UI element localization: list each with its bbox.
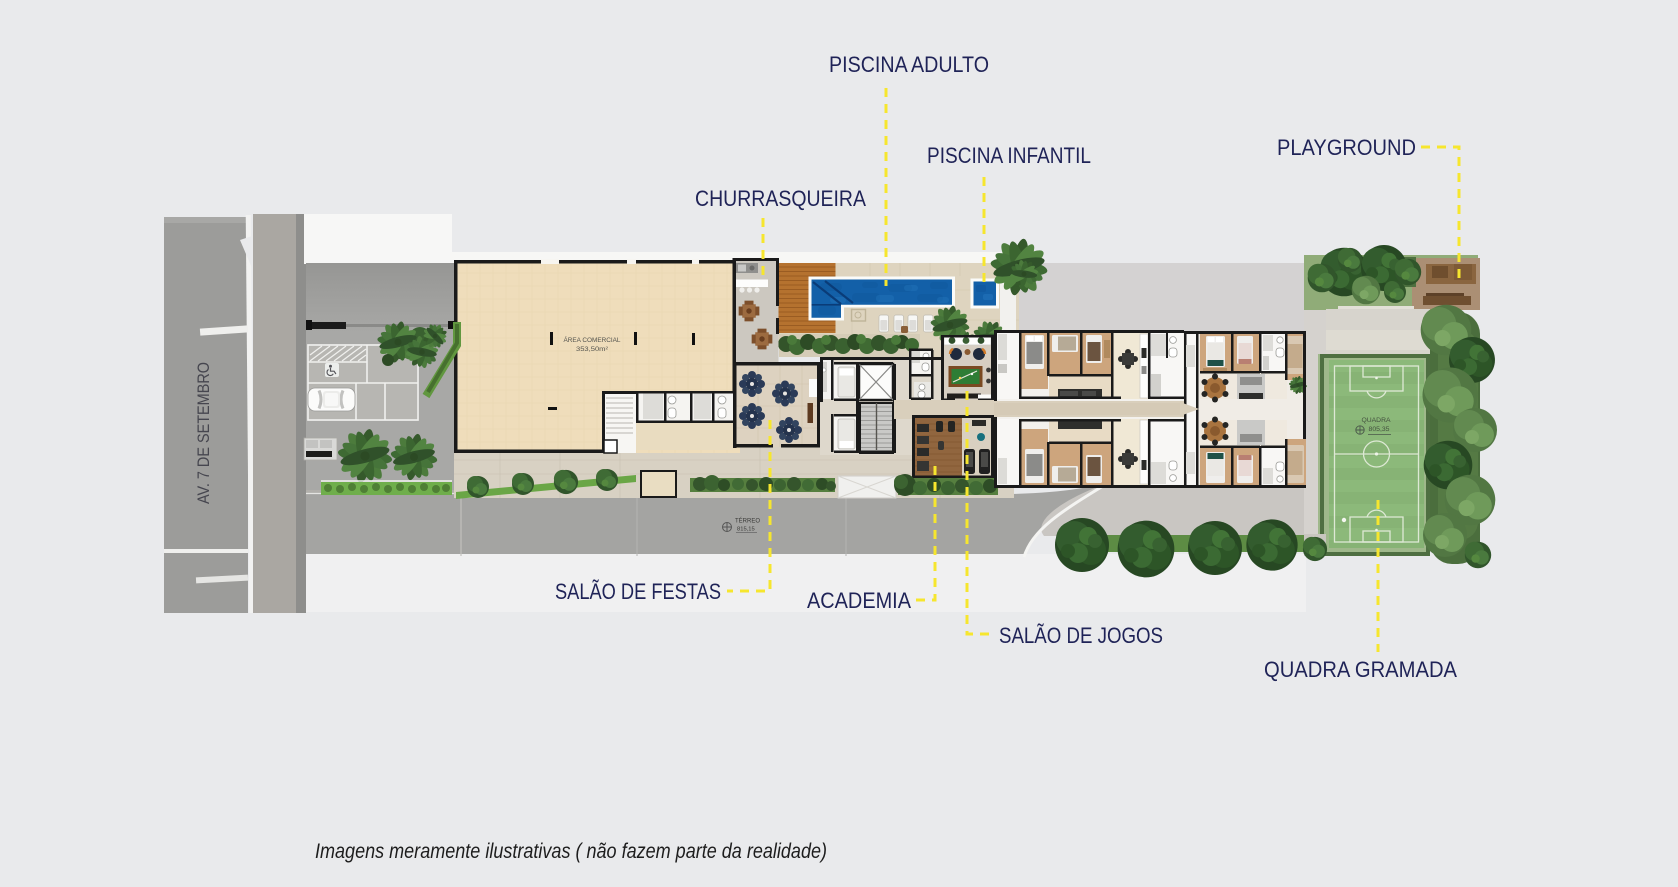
svg-text:SALÃO DE JOGOS: SALÃO DE JOGOS <box>999 623 1163 648</box>
svg-text:TÉRREO: TÉRREO <box>735 518 760 525</box>
svg-text:815,15: 815,15 <box>737 527 755 533</box>
svg-text:Imagens meramente ilustrativas: Imagens meramente ilustrativas ( não faz… <box>315 839 827 863</box>
svg-text:PISCINA ADULTO: PISCINA ADULTO <box>829 52 989 77</box>
svg-text:AV. 7 DE SETEMBRO: AV. 7 DE SETEMBRO <box>195 362 213 504</box>
svg-text:805,35: 805,35 <box>1369 426 1391 433</box>
svg-text:SALÃO DE FESTAS: SALÃO DE FESTAS <box>555 579 721 604</box>
svg-text:PLAYGROUND: PLAYGROUND <box>1277 135 1416 160</box>
svg-text:ÁREA COMERCIAL: ÁREA COMERCIAL <box>564 335 621 344</box>
svg-text:PISCINA INFANTIL: PISCINA INFANTIL <box>927 143 1091 168</box>
svg-text:QUADRA GRAMADA: QUADRA GRAMADA <box>1264 657 1457 682</box>
svg-text:353,50m²: 353,50m² <box>576 346 608 353</box>
svg-text:ACADEMIA: ACADEMIA <box>807 588 911 613</box>
svg-text:QUADRA: QUADRA <box>1362 417 1391 424</box>
svg-text:CHURRASQUEIRA: CHURRASQUEIRA <box>695 186 866 211</box>
